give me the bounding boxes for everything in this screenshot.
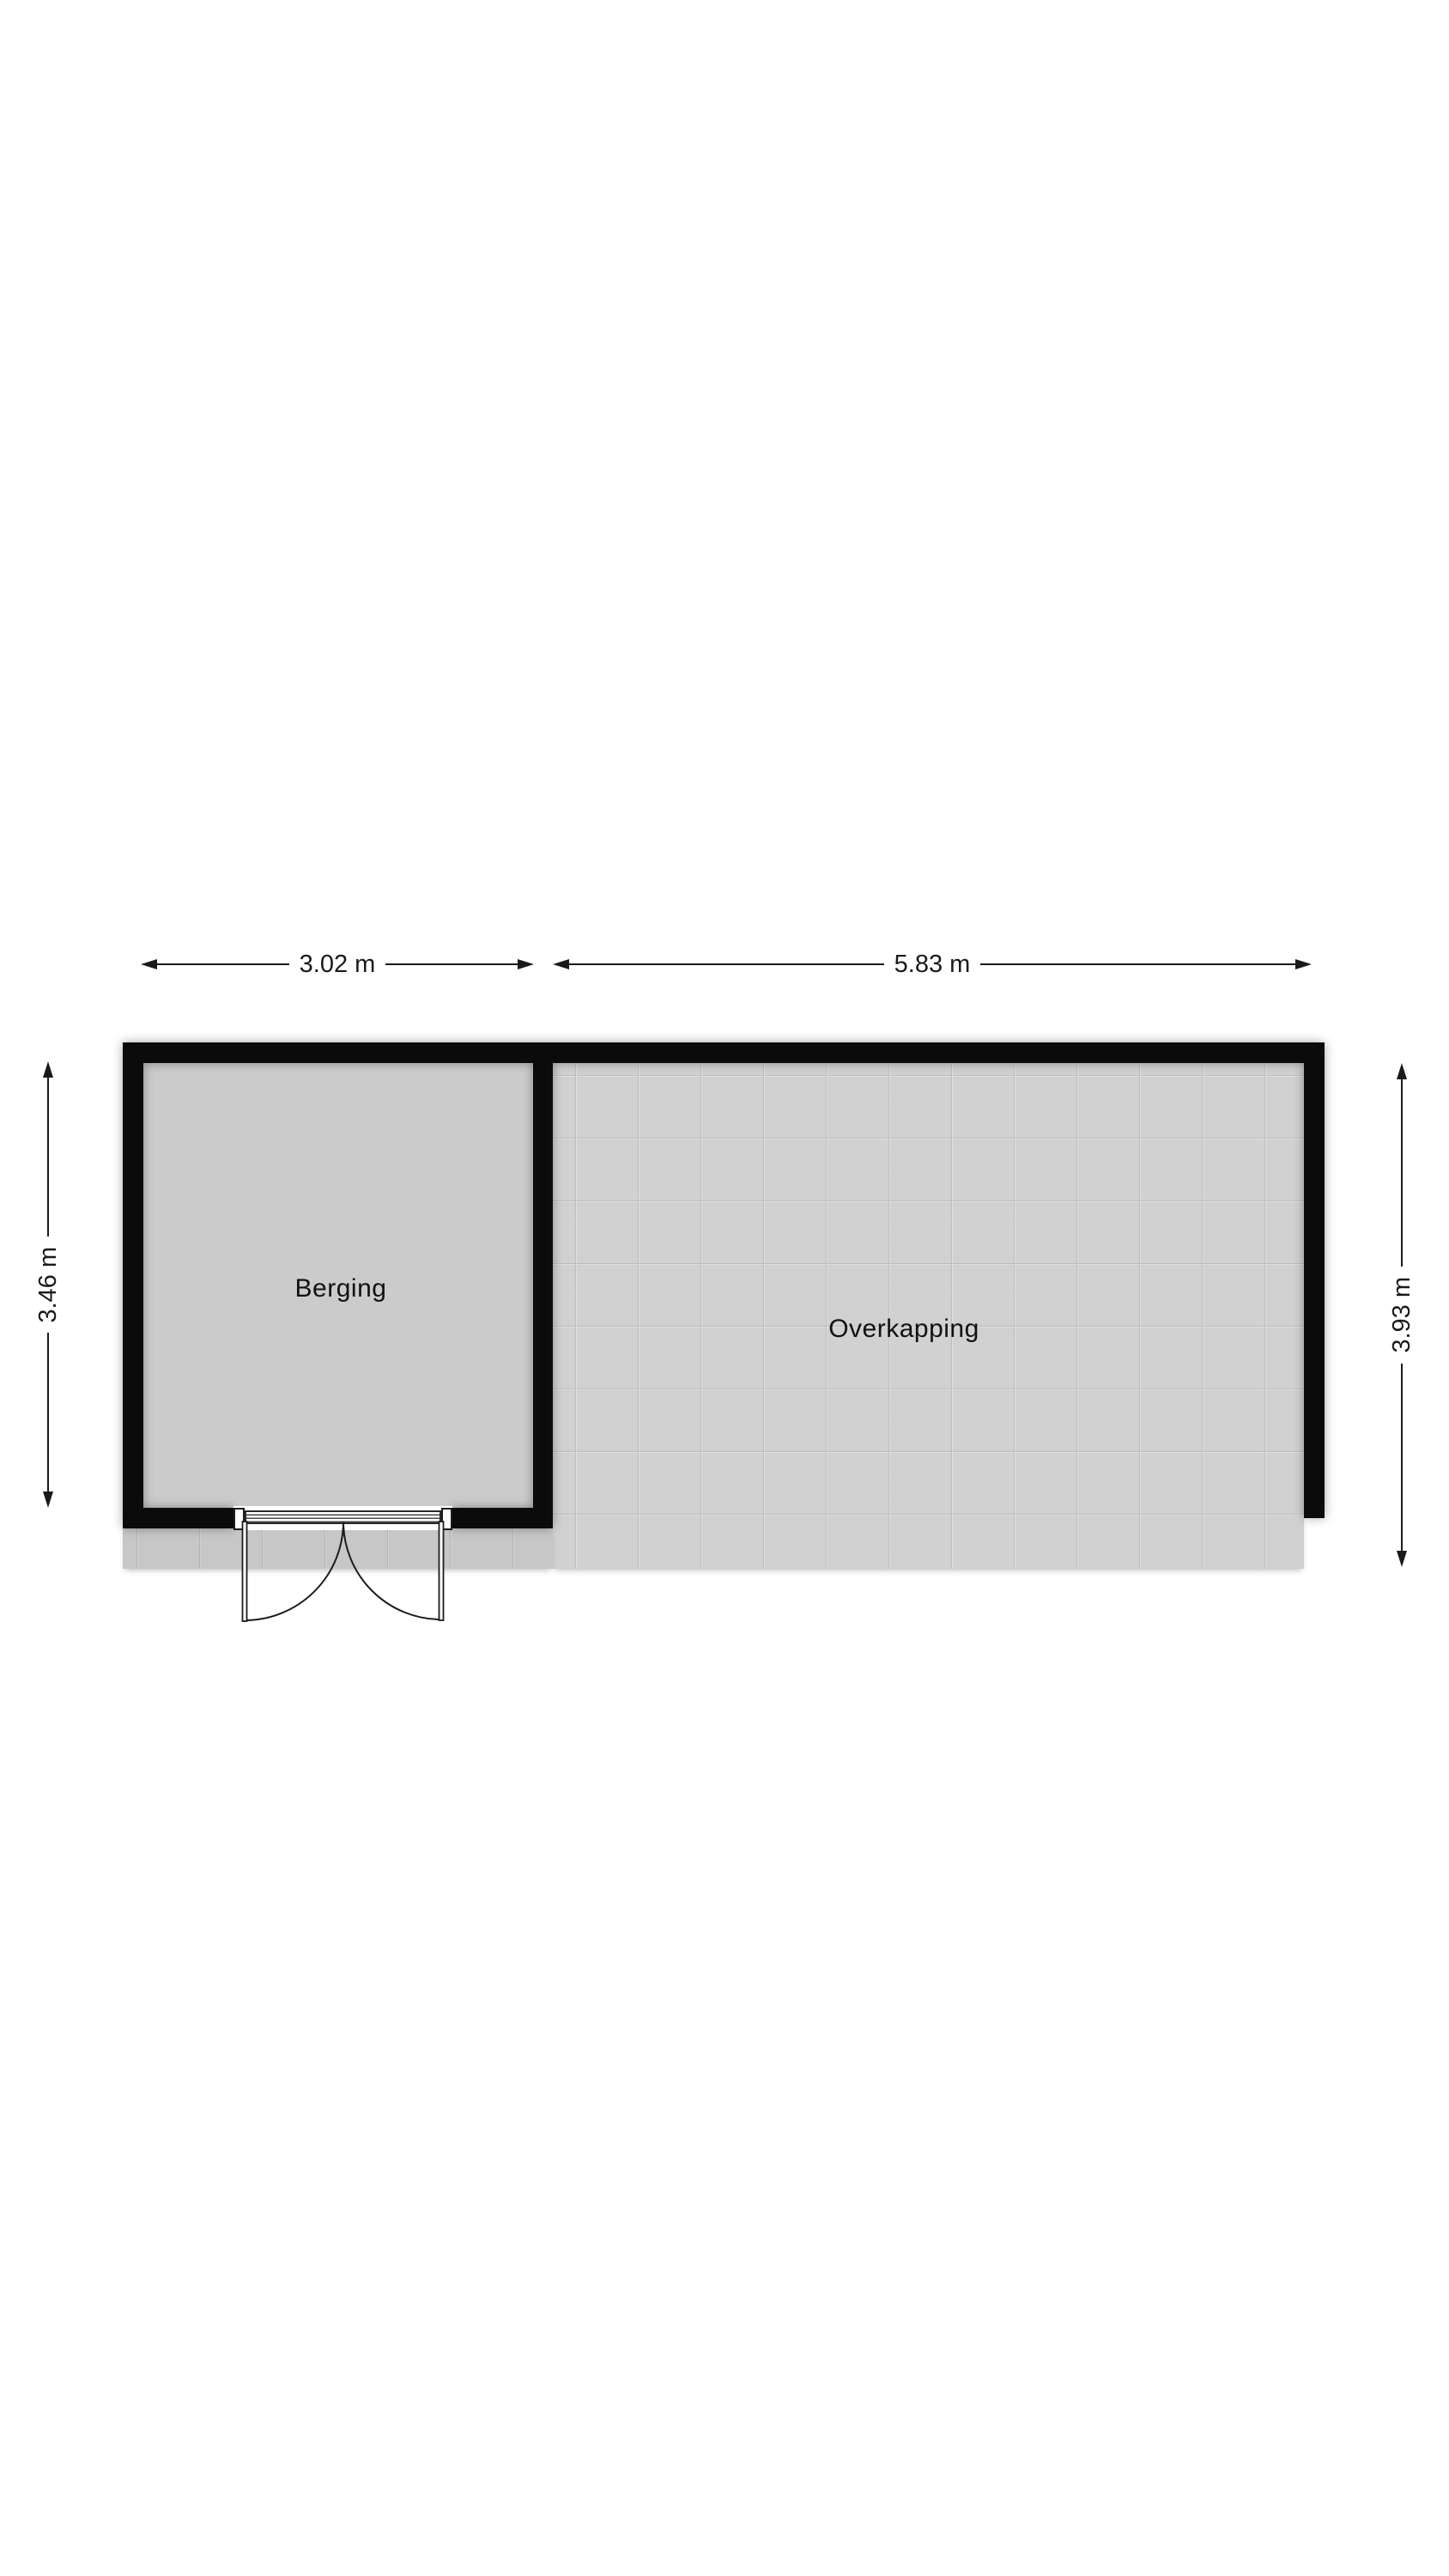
arrowhead-right-icon [1295,959,1312,969]
dimension-label: 5.83 m [884,952,981,977]
dimension-line [1401,1079,1403,1267]
dimension-line [385,963,518,965]
dimension-line [47,1078,49,1236]
arrowhead-right-icon [518,959,534,969]
wall-bottom-right-segment [452,1508,553,1528]
arrowhead-left-icon [553,959,569,969]
dimension-label: 3.46 m [36,1236,61,1334]
door-post-left [233,1508,245,1530]
door-post-right [441,1508,452,1530]
dimension-overkapping-depth: 3.93 m [1388,1063,1416,1567]
dimension-label: 3.93 m [1390,1267,1415,1364]
dimension-berging-height: 3.46 m [34,1061,62,1508]
door-threshold [245,1510,441,1524]
room-label-berging: Berging [295,1274,387,1303]
wall-right [1304,1042,1325,1518]
dimension-label: 3.02 m [289,952,386,977]
dimension-overkapping-width: 5.83 m [553,951,1312,977]
floor-plan: Berging Overkapping [123,1042,1325,1569]
floorplan-page: 3.02 m 5.83 m 3.46 m 3.93 m [0,0,1449,2576]
arrowhead-down-icon [43,1492,53,1508]
dimension-line [157,963,289,965]
dimension-line [569,963,884,965]
dimension-berging-width: 3.02 m [141,951,534,977]
arrowhead-left-icon [141,959,157,969]
arrowhead-up-icon [1397,1063,1407,1079]
walls [123,1042,1325,1569]
dimension-line [47,1333,49,1492]
dimension-line [980,963,1295,965]
wall-left [123,1042,143,1528]
arrowhead-down-icon [1397,1551,1407,1567]
wall-bottom-left-segment [123,1508,233,1528]
wall-top [123,1042,1325,1063]
wall-interior [533,1063,553,1528]
arrowhead-up-icon [43,1061,53,1078]
room-label-overkapping: Overkapping [828,1315,979,1344]
dimension-line [1401,1364,1403,1551]
